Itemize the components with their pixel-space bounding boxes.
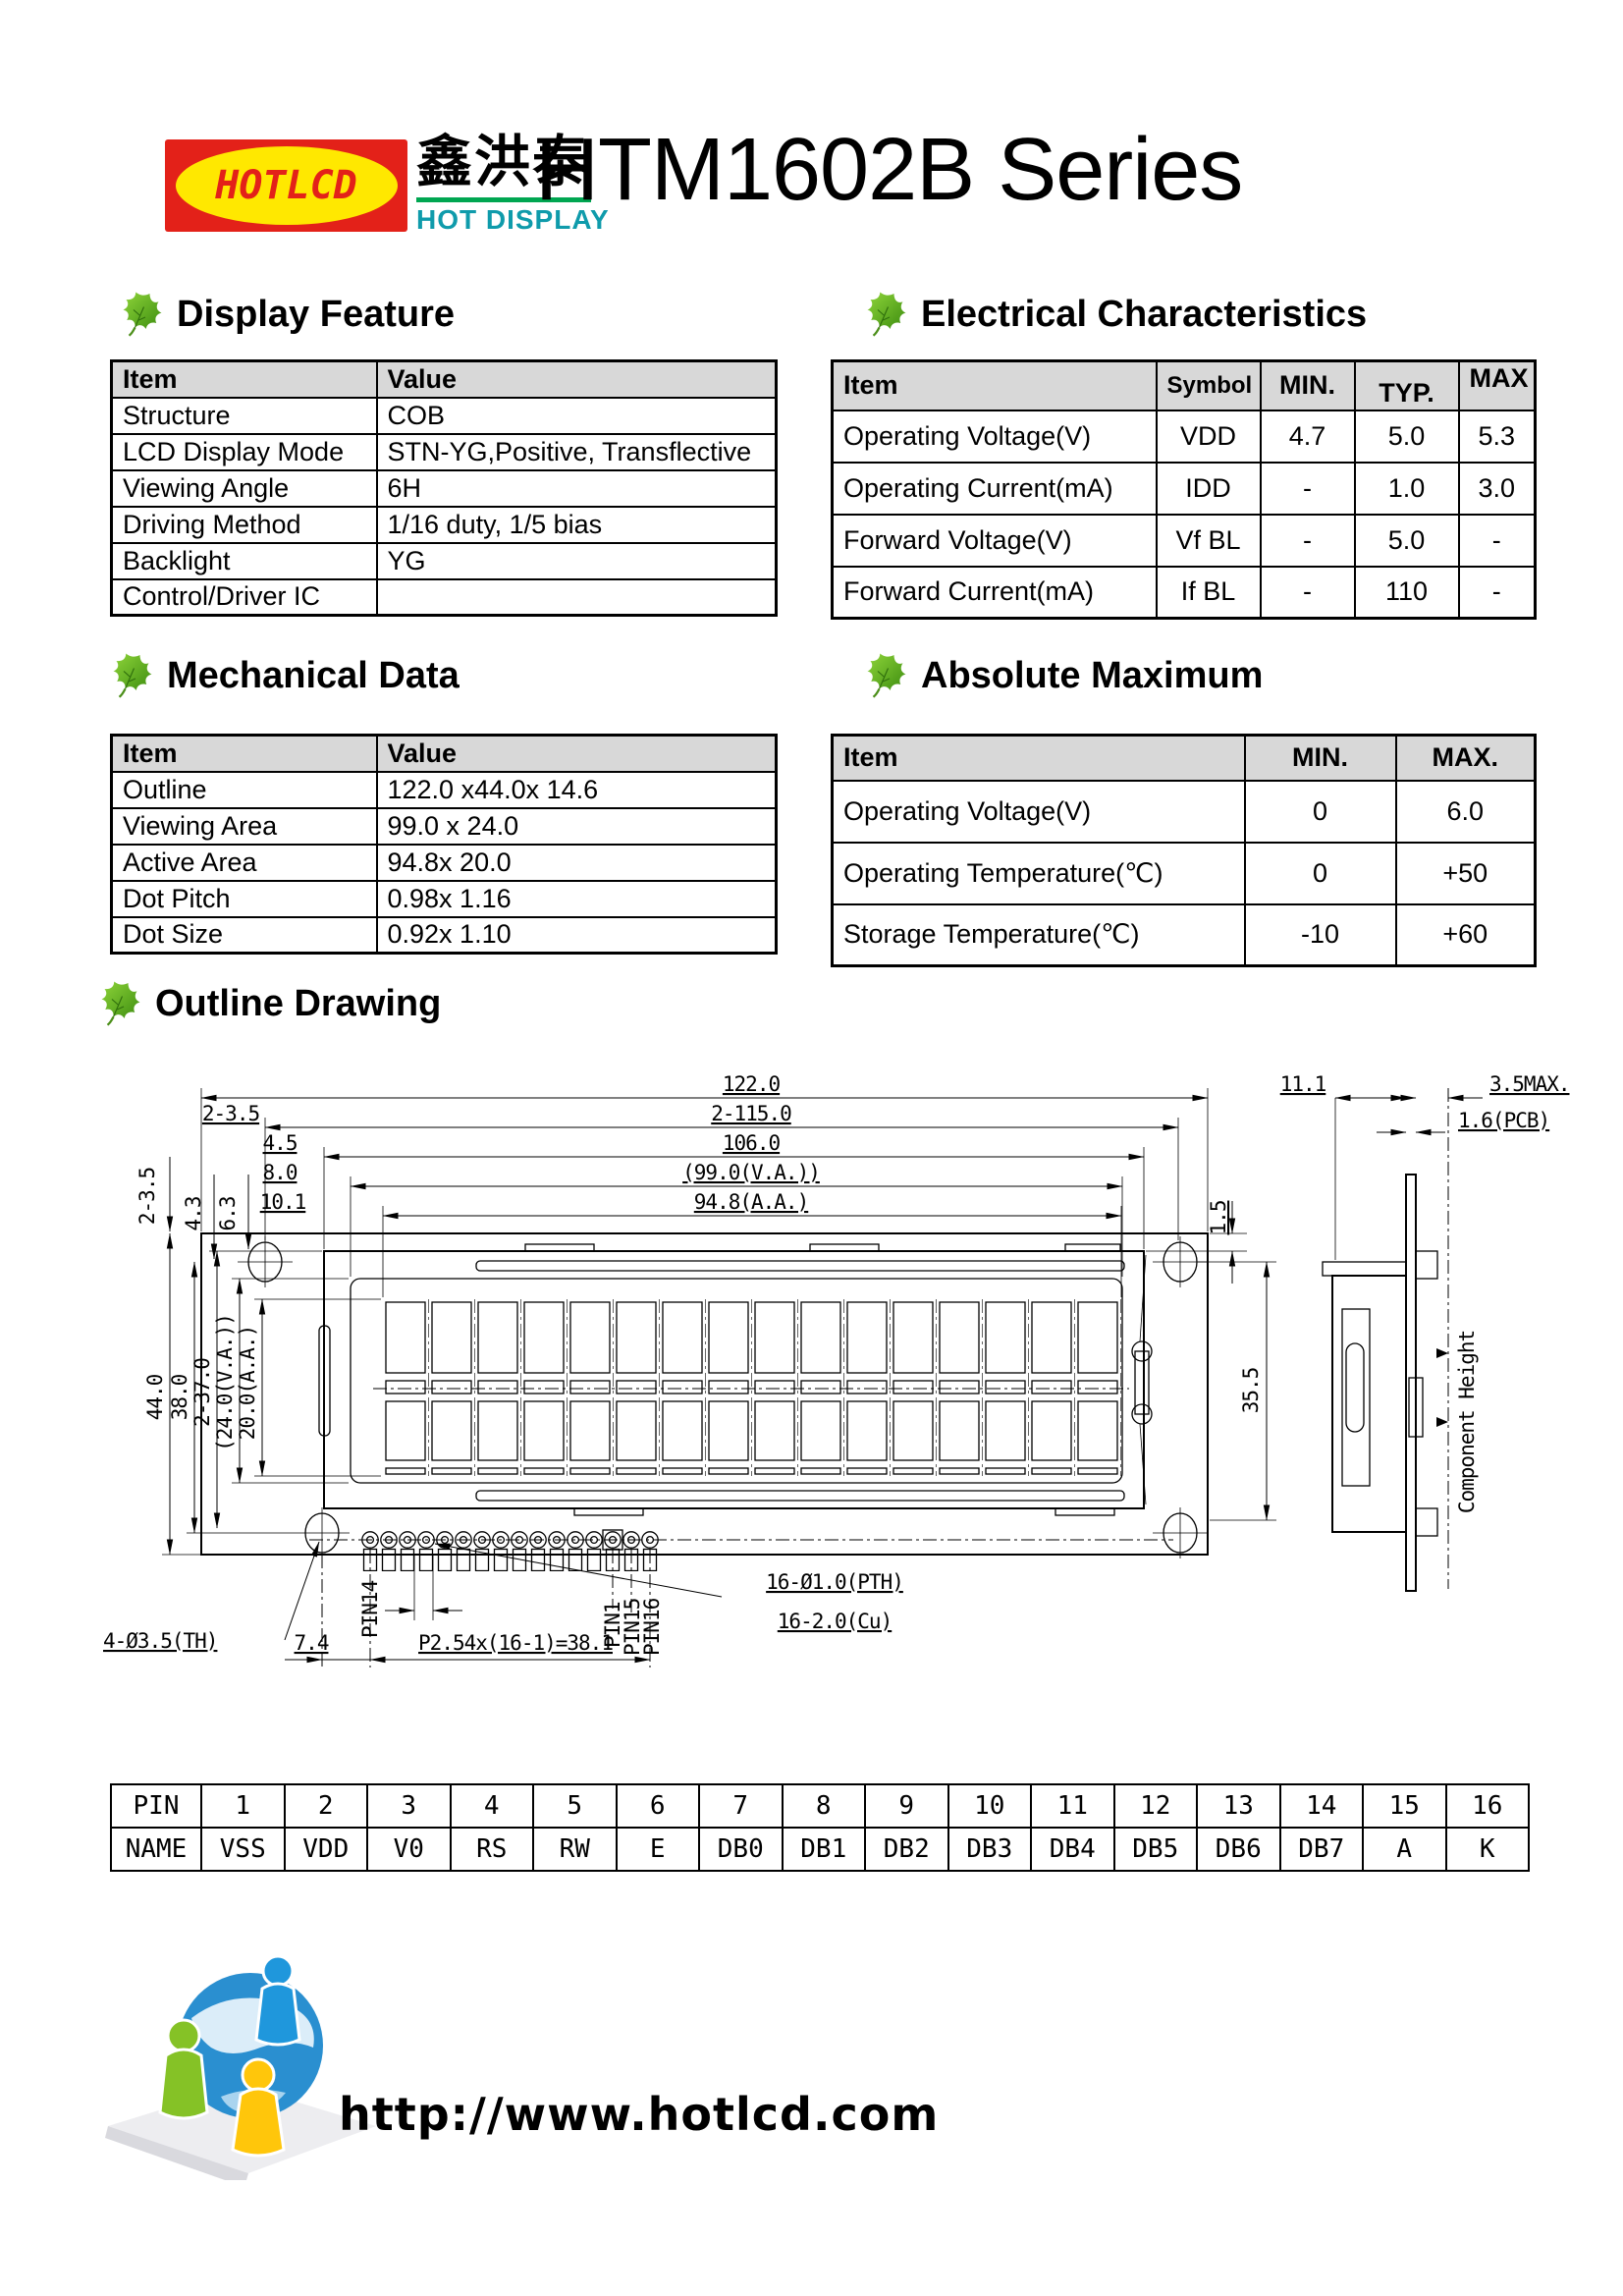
display-feature-table: Item Value StructureCOB LCD Display Mode… — [110, 359, 778, 617]
pin-label: PIN16 — [640, 1598, 664, 1656]
cell: 94.8x 20.0 — [377, 845, 777, 881]
section-title: Electrical Characteristics — [921, 294, 1367, 336]
cell: 3.0 — [1459, 463, 1536, 515]
cell: DB3 — [948, 1828, 1032, 1871]
table-row: LCD Display ModeSTN-YG,Positive, Transfl… — [112, 434, 777, 470]
cell: Value — [377, 736, 777, 772]
dim-label: 2-115.0 — [711, 1102, 791, 1125]
section-mechanical-header: Mechanical Data — [106, 652, 460, 699]
cell: DB5 — [1114, 1828, 1198, 1871]
cell: Driving Method — [112, 507, 377, 543]
pin-assignment-table: PIN 1 2 3 4 5 6 7 8 9 10 11 12 13 14 15 … — [110, 1783, 1530, 1872]
cell: Vf BL — [1157, 515, 1261, 567]
table-row: Driving Method1/16 duty, 1/5 bias — [112, 507, 777, 543]
datasheet-page: HOTLCD 鑫洪泰 HOT DISPLAY HTM1602B Series D… — [0, 0, 1623, 2296]
cell: If BL — [1157, 567, 1261, 619]
backlight-tab — [1132, 1255, 1152, 1504]
cell: COB — [377, 398, 777, 434]
bezel-tab — [810, 1244, 879, 1251]
side-bezel-lip — [1323, 1262, 1406, 1276]
table-row: NAME VSS VDD V0 RS RW E DB0 DB1 DB2 DB3 … — [111, 1828, 1529, 1871]
cell: 3 — [367, 1784, 451, 1828]
company-logo: HOTLCD — [165, 139, 407, 232]
dim-label: 4.3 — [182, 1196, 205, 1230]
side-component-mark — [1436, 1348, 1448, 1358]
cell: - — [1261, 515, 1355, 567]
cell: Operating Voltage(V) — [833, 781, 1245, 843]
table-row: Control/Driver IC — [112, 579, 777, 616]
leaf-icon — [94, 980, 141, 1027]
dim-label: 2-3.5 — [135, 1168, 159, 1225]
dim-label: 4.5 — [263, 1131, 298, 1155]
cell: Operating Temperature(℃) — [833, 843, 1245, 904]
dim-label: 20.0(A.A.) — [236, 1326, 259, 1440]
pitch-label: P2.54x(16-1)=38.1 — [418, 1631, 613, 1655]
cell: Active Area — [112, 845, 377, 881]
cell: 5.0 — [1355, 410, 1459, 463]
cell: 14 — [1280, 1784, 1364, 1828]
cell: 0.92x 1.10 — [377, 917, 777, 954]
cell: 4 — [451, 1784, 534, 1828]
dim-label: (24.0(V.A.)) — [213, 1314, 237, 1451]
cell: IDD — [1157, 463, 1261, 515]
cell: Dot Pitch — [112, 881, 377, 917]
table-row: Active Area94.8x 20.0 — [112, 845, 777, 881]
cell: K — [1446, 1828, 1530, 1871]
bezel-tab — [574, 1508, 643, 1515]
cell: DB6 — [1197, 1828, 1280, 1871]
dim-label: 6.3 — [216, 1196, 240, 1230]
table-header-row: Item Value — [112, 361, 777, 398]
cell: 122.0 x44.0x 14.6 — [377, 772, 777, 808]
table-row: Storage Temperature(℃)-10+60 — [833, 904, 1536, 966]
cell: -10 — [1245, 904, 1396, 966]
side-pcb — [1406, 1175, 1416, 1591]
table-row: Outline122.0 x44.0x 14.6 — [112, 772, 777, 808]
table-row: Operating Temperature(℃)0+50 — [833, 843, 1536, 904]
cell: VSS — [201, 1828, 285, 1871]
side-slot — [1346, 1343, 1364, 1432]
cell: 99.0 x 24.0 — [377, 808, 777, 845]
cell: VDD — [1157, 410, 1261, 463]
section-title: Mechanical Data — [167, 655, 460, 697]
absolute-maximum-table: Item MIN. MAX. Operating Voltage(V)06.0 … — [831, 734, 1537, 967]
dim-label: (99.0(V.A.)) — [682, 1161, 820, 1184]
dim-label: 106.0 — [723, 1131, 781, 1155]
section-display-feature-header: Display Feature — [116, 291, 455, 338]
table-header-row: Item Symbol MIN. TYP. MAX — [833, 361, 1536, 410]
dim-label: 35.5 — [1239, 1368, 1263, 1414]
cell: 0 — [1245, 843, 1396, 904]
bezel-tab — [1055, 1508, 1114, 1515]
cell: Structure — [112, 398, 377, 434]
cell: +50 — [1396, 843, 1536, 904]
cell: +60 — [1396, 904, 1536, 966]
cell: MAX. — [1396, 736, 1536, 781]
table-row: Dot Size0.92x 1.10 — [112, 917, 777, 954]
cell: Forward Voltage(V) — [833, 515, 1157, 567]
table-row: Viewing Area99.0 x 24.0 — [112, 808, 777, 845]
dim-label: 122.0 — [723, 1072, 781, 1096]
cell: RS — [451, 1828, 534, 1871]
leaf-icon — [860, 291, 907, 338]
section-title: Absolute Maximum — [921, 655, 1263, 697]
cell: Control/Driver IC — [112, 579, 377, 616]
website-url[interactable]: http://www.hotlcd.com — [339, 2088, 939, 2141]
cell: 10 — [948, 1784, 1032, 1828]
cell: 2 — [285, 1784, 368, 1828]
cell: 4.7 — [1261, 410, 1355, 463]
leaf-icon — [860, 652, 907, 699]
dim-label: 94.8(A.A.) — [694, 1190, 808, 1214]
cell: Item — [833, 736, 1245, 781]
cell: Item — [112, 736, 377, 772]
table-row: Forward Current(mA)If BL-110- — [833, 567, 1536, 619]
dim-label: 44.0 — [143, 1374, 167, 1420]
table-row: Operating Current(mA)IDD-1.03.0 — [833, 463, 1536, 515]
outline-drawing: 122.0 2-115.0 106.0 (99.0(V.A.)) 94.8(A.… — [83, 1059, 1615, 1746]
page-title: HTM1602B Series — [535, 120, 1242, 221]
section-title: Outline Drawing — [155, 983, 441, 1025]
cell: 6H — [377, 470, 777, 507]
table-row: Forward Voltage(V)Vf BL-5.0- — [833, 515, 1536, 567]
component-height-label: Component Height — [1455, 1331, 1479, 1513]
cell: Forward Current(mA) — [833, 567, 1157, 619]
electrical-table: Item Symbol MIN. TYP. MAX Operating Volt… — [831, 359, 1537, 620]
cell: 6 — [617, 1784, 700, 1828]
cell: 16 — [1446, 1784, 1530, 1828]
mounting-hole — [295, 1507, 350, 1558]
bottom-slot — [476, 1491, 1124, 1501]
cell: Viewing Area — [112, 808, 377, 845]
pin-hole-label: 16-Ø1.0(PTH) — [766, 1570, 903, 1594]
cell: NAME — [111, 1828, 201, 1871]
dim-label: 2-37.0 — [190, 1358, 214, 1427]
side-component-mark — [1436, 1417, 1448, 1427]
logo-oval: HOTLCD — [176, 146, 398, 225]
cell: Item — [833, 361, 1157, 410]
cell: MIN. — [1261, 361, 1355, 410]
cell: - — [1459, 515, 1536, 567]
cell: 8 — [783, 1784, 866, 1828]
hole-label: 4-Ø3.5(TH) — [103, 1629, 217, 1653]
mounting-hole — [238, 1236, 293, 1287]
cell: - — [1459, 567, 1536, 619]
cell: - — [1261, 567, 1355, 619]
side-tab-top — [1416, 1251, 1437, 1279]
cell: MAX — [1459, 361, 1536, 410]
cell: Item — [112, 361, 377, 398]
cell — [377, 579, 777, 616]
dim-label: 2-3.5 — [202, 1102, 259, 1125]
right-dimensions: 1.5 35.5 — [1146, 1201, 1276, 1520]
dim-label: 1.6(PCB) — [1458, 1109, 1549, 1132]
footer-globe-logo — [93, 1920, 388, 2180]
cell: PIN — [111, 1784, 201, 1828]
cell: Backlight — [112, 543, 377, 579]
cell: 15 — [1363, 1784, 1446, 1828]
table-row: StructureCOB — [112, 398, 777, 434]
cell: YG — [377, 543, 777, 579]
cell: 1 — [201, 1784, 285, 1828]
cell: Dot Size — [112, 917, 377, 954]
table-row: BacklightYG — [112, 543, 777, 579]
cell: 12 — [1114, 1784, 1198, 1828]
side-tab-bottom — [1416, 1508, 1437, 1536]
cell: 1.0 — [1355, 463, 1459, 515]
cell: 5 — [533, 1784, 617, 1828]
cell: 1/16 duty, 1/5 bias — [377, 507, 777, 543]
table-row: Viewing Angle6H — [112, 470, 777, 507]
cell: Viewing Angle — [112, 470, 377, 507]
cell: Operating Voltage(V) — [833, 410, 1157, 463]
cell: 11 — [1031, 1784, 1114, 1828]
cell: 9 — [865, 1784, 948, 1828]
dim-label: 8.0 — [263, 1161, 298, 1184]
person-green — [160, 2020, 207, 2118]
mechanical-table: Item Value Outline122.0 x44.0x 14.6 View… — [110, 734, 778, 955]
cell: DB4 — [1031, 1828, 1114, 1871]
cell: Operating Current(mA) — [833, 463, 1157, 515]
front-view — [201, 1233, 1208, 1571]
leaf-icon — [116, 291, 163, 338]
cell: MIN. — [1245, 736, 1396, 781]
cell: TYP. — [1355, 361, 1459, 410]
dim-label: 3.5MAX. — [1489, 1072, 1570, 1096]
cell: LCD Display Mode — [112, 434, 377, 470]
dim-label: 11.1 — [1280, 1072, 1326, 1096]
cell: 5.0 — [1355, 515, 1459, 567]
character-grid — [383, 1299, 1121, 1476]
dim-label: 38.0 — [168, 1374, 191, 1420]
pad-label: 16-2.0(Cu) — [778, 1610, 892, 1633]
table-row: PIN 1 2 3 4 5 6 7 8 9 10 11 12 13 14 15 … — [111, 1784, 1529, 1828]
bezel-tab — [525, 1244, 594, 1251]
cell: A — [1363, 1828, 1446, 1871]
cell: 13 — [1197, 1784, 1280, 1828]
cell: Outline — [112, 772, 377, 808]
section-title: Display Feature — [177, 294, 455, 336]
logo-text: HOTLCD — [215, 163, 357, 208]
cell: DB2 — [865, 1828, 948, 1871]
cell: STN-YG,Positive, Transflective — [377, 434, 777, 470]
cell: V0 — [367, 1828, 451, 1871]
section-absolute-maximum-header: Absolute Maximum — [860, 652, 1263, 699]
pin-row — [361, 1530, 660, 1571]
top-left-dimensions: 2-3.5 4.3 6.3 — [135, 1157, 248, 1259]
cell: Value — [377, 361, 777, 398]
cell: 0 — [1245, 781, 1396, 843]
side-view: Component Height 11.1 3.5MAX. 1.6(PCB) — [1280, 1072, 1570, 1591]
section-outline-drawing-header: Outline Drawing — [94, 980, 441, 1027]
cell: 110 — [1355, 567, 1459, 619]
table-header-row: Item MIN. MAX. — [833, 736, 1536, 781]
table-row: Dot Pitch0.98x 1.16 — [112, 881, 777, 917]
section-electrical-header: Electrical Characteristics — [860, 291, 1367, 338]
table-header-row: Item Value — [112, 736, 777, 772]
cell: 7 — [699, 1784, 783, 1828]
top-slot — [476, 1261, 1124, 1271]
cell: RW — [533, 1828, 617, 1871]
cell: 6.0 — [1396, 781, 1536, 843]
cell: - — [1261, 463, 1355, 515]
cell: DB7 — [1280, 1828, 1364, 1871]
top-dimensions: 122.0 2-115.0 106.0 (99.0(V.A.)) 94.8(A.… — [201, 1072, 1208, 1297]
person-blue — [256, 1956, 299, 2045]
dim-label: 1.5 — [1207, 1201, 1230, 1235]
cell: 5.3 — [1459, 410, 1536, 463]
dim-label: 10.1 — [260, 1190, 306, 1214]
mounting-hole — [1153, 1507, 1208, 1558]
table-row: Operating Voltage(V)VDD4.75.05.3 — [833, 410, 1536, 463]
cell: E — [617, 1828, 700, 1871]
cell: VDD — [285, 1828, 368, 1871]
cell: Symbol — [1157, 361, 1261, 410]
offset-label: 7.4 — [295, 1631, 329, 1655]
leaf-icon — [106, 652, 153, 699]
cell: DB0 — [699, 1828, 783, 1871]
cell: Storage Temperature(℃) — [833, 904, 1245, 966]
bezel-tab — [1065, 1244, 1120, 1251]
cell: DB1 — [783, 1828, 866, 1871]
table-row: Operating Voltage(V)06.0 — [833, 781, 1536, 843]
cell: 0.98x 1.16 — [377, 881, 777, 917]
